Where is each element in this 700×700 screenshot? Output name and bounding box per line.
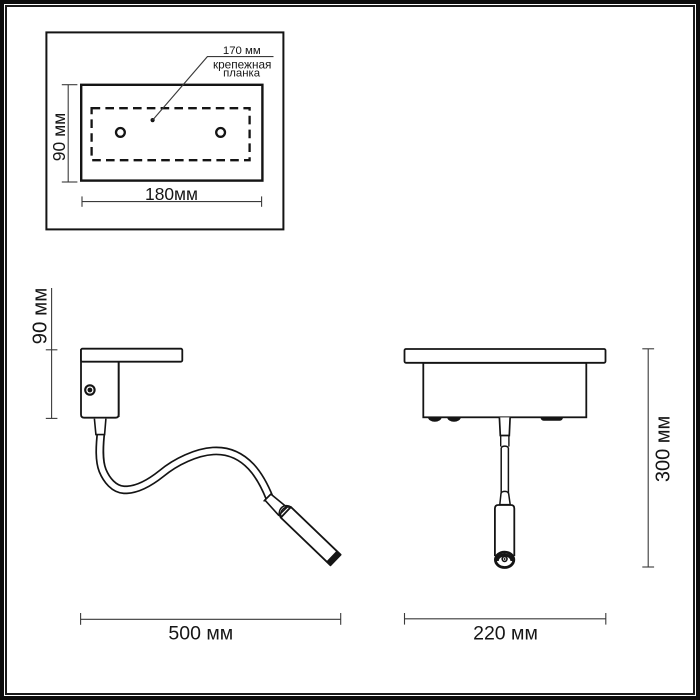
svg-text:90 мм: 90 мм	[49, 113, 69, 161]
svg-text:планка: планка	[223, 67, 261, 79]
svg-text:180мм: 180мм	[145, 184, 198, 204]
svg-text:170 мм: 170 мм	[223, 45, 261, 57]
svg-text:300 мм: 300 мм	[652, 416, 674, 482]
svg-text:500 мм: 500 мм	[168, 622, 233, 644]
svg-text:220 мм: 220 мм	[473, 622, 538, 644]
svg-text:90 мм: 90 мм	[29, 288, 52, 345]
